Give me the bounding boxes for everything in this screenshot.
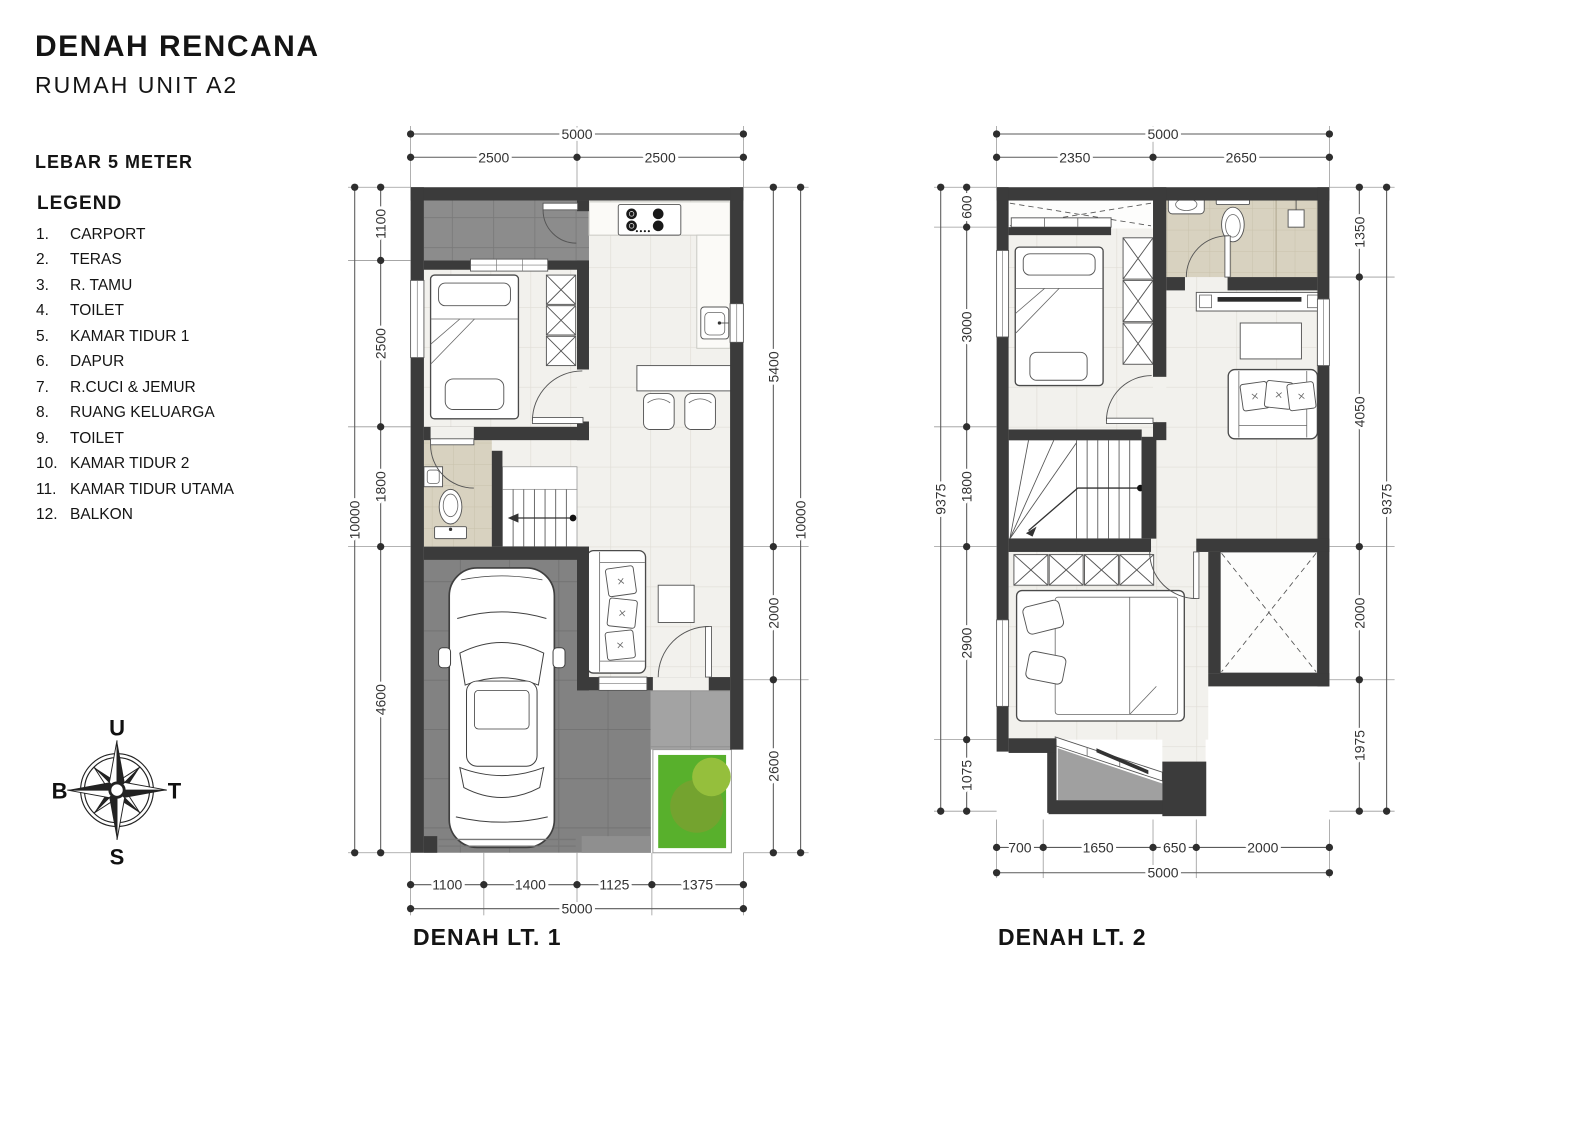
- dimension-label: 1100: [373, 209, 389, 239]
- sofa-r-tamu: [587, 551, 646, 673]
- void-area: [1220, 552, 1317, 673]
- dimension-label: 2650: [1226, 149, 1257, 165]
- legend-item-label: R.CUCI & JEMUR: [70, 379, 196, 397]
- dimension-label: 3000: [959, 311, 975, 342]
- dimension-label: 1800: [959, 471, 975, 502]
- plan2-label: DENAH LT. 2: [998, 924, 1147, 951]
- dimension-label: 2500: [645, 149, 676, 165]
- legend-item-number: 2.: [36, 251, 70, 269]
- plan1-label: DENAH LT. 1: [413, 924, 562, 951]
- legend-item-label: KAMAR TIDUR 1: [70, 328, 189, 346]
- legend-item-label: RUANG KELUARGA: [70, 404, 215, 422]
- compass-east-label: T: [168, 779, 182, 804]
- dimension-label: 650: [1163, 839, 1187, 855]
- dim-plan1-top-total: 5000: [407, 126, 747, 142]
- dimension-label: 2900: [959, 627, 975, 658]
- dimension-label: 2600: [765, 750, 781, 781]
- legend-item-label: DAPUR: [70, 353, 124, 371]
- legend-item-number: 8.: [36, 404, 70, 422]
- car: [439, 568, 565, 848]
- dimension-label: 1350: [1351, 216, 1367, 247]
- dimension-label: 9375: [1379, 483, 1395, 514]
- kitchen-sink: [701, 307, 729, 339]
- legend-item-number: 1.: [36, 226, 70, 244]
- legend-item: 6.DAPUR: [36, 350, 234, 376]
- legend-item: 9.TOILET: [36, 426, 234, 452]
- dimension-label: 1800: [373, 471, 389, 502]
- legend-item: 10.KAMAR TIDUR 2: [36, 452, 234, 478]
- wardrobe-kamar-tidur-1: [546, 275, 575, 366]
- dimension-label: 10000: [793, 500, 809, 539]
- legend-item-number: 9.: [36, 430, 70, 448]
- dimension-label: 9375: [933, 483, 949, 514]
- dimension-label: 10000: [347, 500, 363, 539]
- legend-item-label: TOILET: [70, 302, 124, 320]
- legend-heading: LEGEND: [37, 193, 122, 215]
- compass-star: [67, 740, 167, 840]
- bed-kamar-tidur-1: [431, 275, 519, 419]
- dimension-label: 1400: [515, 877, 546, 893]
- dimension-label: 4050: [1351, 396, 1367, 427]
- dim-plan2-top-total: 5000: [993, 126, 1333, 142]
- dimension-label: 5000: [1147, 865, 1178, 881]
- dimension-label: 2000: [1247, 839, 1278, 855]
- legend-item-label: TERAS: [70, 251, 122, 269]
- dim-plan1-bottom-total: 5000: [407, 901, 747, 916]
- legend-item: 1.CARPORT: [36, 222, 234, 248]
- dim-plan2-right-total: 9375: [1379, 184, 1395, 815]
- legend-list: 1.CARPORT 2.TERAS 3.R. TAMU 4.TOILET 5.K…: [36, 222, 234, 528]
- legend-item-number: 6.: [36, 353, 70, 371]
- compass-north-label: U: [109, 715, 125, 740]
- walkway-floor: [651, 690, 730, 749]
- stairs-lt1: [502, 467, 577, 547]
- bush-small: [692, 758, 731, 797]
- legend-item-number: 4.: [36, 302, 70, 320]
- toilet-2: [1166, 193, 1317, 278]
- dimension-label: 1375: [682, 877, 713, 893]
- dimension-label: 5400: [765, 351, 781, 382]
- legend-item: 4.TOILET: [36, 299, 234, 325]
- dimension-label: 1125: [599, 877, 629, 893]
- legend-item: 2.TERAS: [36, 248, 234, 274]
- legend-item: 7.R.CUCI & JEMUR: [36, 375, 234, 401]
- width-label: LEBAR 5 METER: [35, 152, 193, 173]
- page-title: DENAH RENCANA: [35, 30, 320, 64]
- legend-item-number: 3.: [36, 277, 70, 295]
- legend-item: 12.BALKON: [36, 503, 234, 529]
- dim-plan2-left-total: 9375: [933, 184, 949, 815]
- legend-item-number: 12.: [36, 506, 70, 524]
- page-subtitle: RUMAH UNIT A2: [35, 72, 238, 99]
- compass-south-label: S: [110, 845, 125, 870]
- legend-item: 8.RUANG KELUARGA: [36, 401, 234, 427]
- dimension-label: 2500: [373, 328, 389, 359]
- dimension-label: 600: [959, 195, 975, 219]
- legend-item-number: 10.: [36, 455, 70, 473]
- dimension-label: 2000: [1351, 597, 1367, 628]
- dim-plan1-left-total: 10000: [347, 184, 363, 857]
- dimension-label: 2000: [765, 597, 781, 628]
- legend-item-label: BALKON: [70, 506, 133, 524]
- wardrobe-kamar-tidur-2: [1123, 238, 1153, 364]
- plan-sheet: DENAH RENCANA RUMAH UNIT A2 LEBAR 5 METE…: [0, 0, 1588, 1122]
- stove: [618, 205, 681, 236]
- dimension-label: 700: [1008, 839, 1032, 855]
- dimension-label: 5000: [561, 126, 592, 142]
- dimension-label: 5000: [561, 901, 592, 916]
- legend-item-label: R. TAMU: [70, 277, 132, 295]
- dimension-label: 1100: [432, 877, 462, 893]
- legend-item-label: CARPORT: [70, 226, 146, 244]
- dimension-label: 2500: [478, 149, 509, 165]
- floor-plan-2: 23502650 5000 6003000180029001075 9375 1…: [922, 124, 1404, 916]
- balcony-access-floor: [1162, 738, 1205, 763]
- legend-item-number: 7.: [36, 379, 70, 397]
- dim-plan2-bottom-total: 5000: [993, 865, 1333, 881]
- coffee-table: [658, 585, 694, 622]
- dimension-label: 4600: [373, 684, 389, 715]
- legend-item: 3.R. TAMU: [36, 273, 234, 299]
- laundry-area: [1009, 201, 1153, 229]
- legend-item-label: TOILET: [70, 430, 124, 448]
- legend-item-number: 11.: [36, 481, 70, 499]
- legend-item-label: KAMAR TIDUR UTAMA: [70, 481, 234, 499]
- legend-item-number: 5.: [36, 328, 70, 346]
- legend-item: 11.KAMAR TIDUR UTAMA: [36, 477, 234, 503]
- dimension-label: 1075: [959, 760, 975, 791]
- compass-west-label: B: [52, 779, 68, 804]
- floor-plan-1: 25002500 5000 1100250018004600 10000 540…: [336, 124, 818, 916]
- dimension-label: 1650: [1083, 839, 1114, 855]
- bed-kamar-tidur-utama: [1017, 591, 1185, 721]
- dimension-label: 1975: [1351, 730, 1367, 761]
- legend-item: 5.KAMAR TIDUR 1: [36, 324, 234, 350]
- stairs-lt2: [1009, 440, 1144, 539]
- bed-kamar-tidur-2: [1015, 247, 1103, 385]
- dimension-label: 2350: [1059, 149, 1090, 165]
- dimension-label: 5000: [1147, 126, 1178, 142]
- dim-plan1-right-total: 10000: [793, 184, 809, 857]
- compass-rose: U T S B: [50, 710, 184, 874]
- legend-item-label: KAMAR TIDUR 2: [70, 455, 189, 473]
